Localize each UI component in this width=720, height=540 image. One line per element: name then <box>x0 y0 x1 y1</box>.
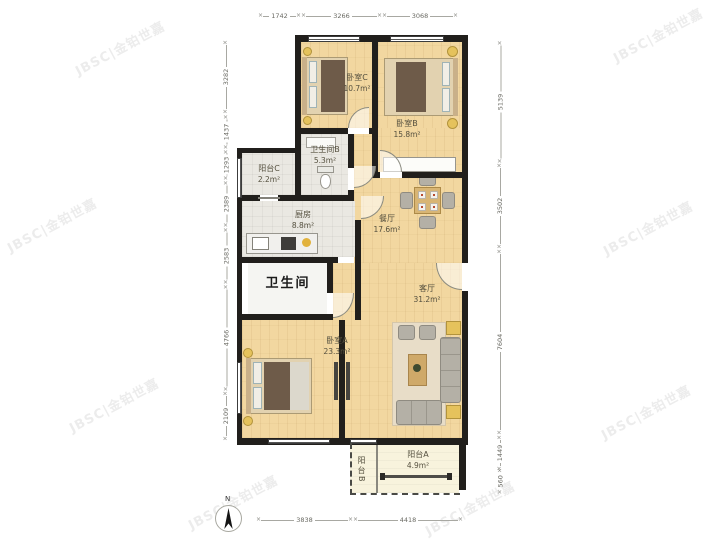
dimension-left-2: ×1293× <box>221 149 231 180</box>
dimension-top-1: ×3266× <box>301 11 382 21</box>
dimension-right-1: ×3502× <box>495 163 505 249</box>
dimension-left-1: ×1437× <box>221 114 231 149</box>
dimension-top-0: ×1742× <box>258 11 301 21</box>
dimension-left-6: ×2109× <box>221 391 231 441</box>
dimension-right-2: ×7604× <box>495 249 505 435</box>
dimension-bottom-0: ×3838× <box>256 515 353 525</box>
dimension-bottom-1: ×4418× <box>353 515 463 525</box>
dimension-left-5: ×4766× <box>221 284 231 391</box>
dimension-right-4: ×560× <box>495 471 505 494</box>
dimension-right-3: ×1449× <box>495 435 505 471</box>
floor-plan-page: { "watermark": { "text": "JBSC|金铂世嘉" }, … <box>0 0 720 540</box>
dimension-layer: ×1742××3266××3068××3838××4418××3282××143… <box>0 0 720 540</box>
dimension-top-2: ×3068× <box>382 11 458 21</box>
dimension-left-0: ×3282× <box>221 40 231 114</box>
dimension-right-0: ×5139× <box>495 40 505 163</box>
dimension-left-3: ×2389× <box>221 180 231 227</box>
dimension-left-4: ×2583× <box>221 227 231 284</box>
